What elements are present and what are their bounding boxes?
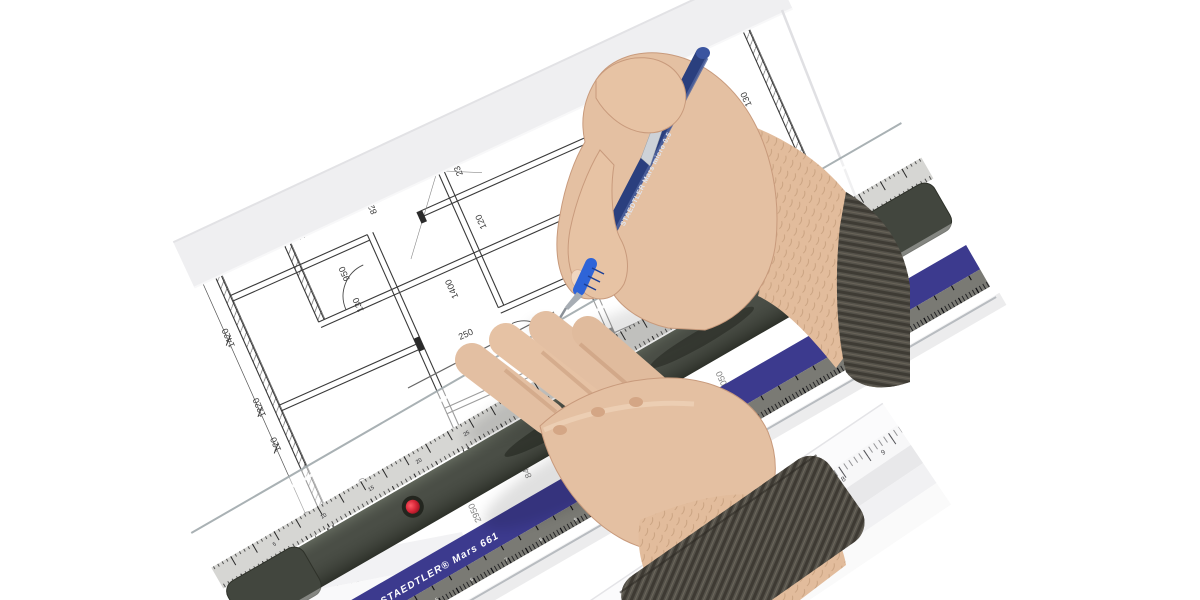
knuckle xyxy=(591,407,605,417)
scene-canvas: 920 4170 120 920 590 1340 1420 1220 120 … xyxy=(0,0,1200,600)
pen-cap xyxy=(696,47,710,59)
knuckle xyxy=(553,425,567,435)
photo-drafting-scene: 920 4170 120 920 590 1340 1420 1220 120 … xyxy=(0,0,1200,600)
knuckle xyxy=(629,397,643,407)
